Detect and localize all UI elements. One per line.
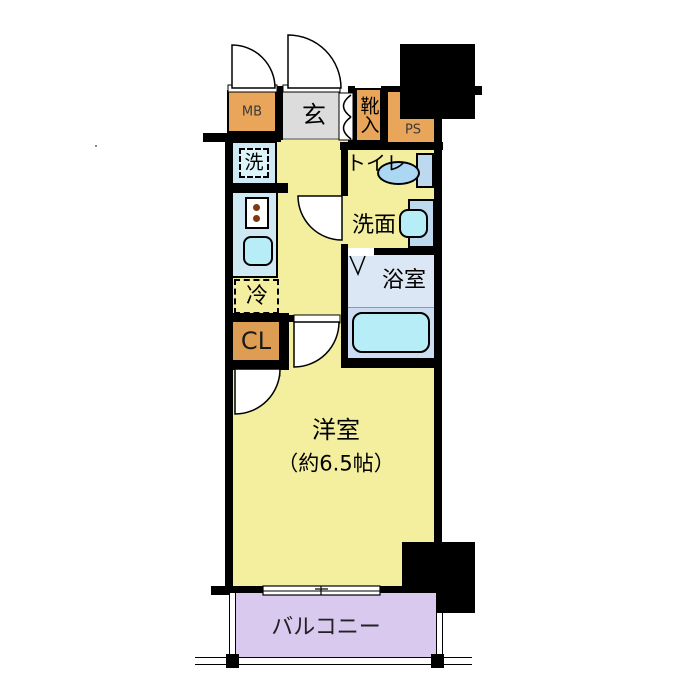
label-fridge: 冷: [246, 286, 268, 308]
door-window-symbols: [0, 0, 700, 700]
label-washer: 洗: [244, 154, 263, 173]
label-balcony: バルコニー: [271, 617, 381, 639]
entry-door-arc: [288, 35, 341, 88]
stray-dot: [95, 145, 97, 147]
mb-door-arc: [232, 45, 275, 88]
label-closet: CL: [241, 329, 271, 353]
washroom-door-arc: [298, 196, 342, 240]
label-genkan: 玄: [302, 103, 326, 127]
label-mb: MB: [242, 106, 262, 119]
floor-plan: MB 玄 靴入 PS 洗 トイレ 洗面 浴室 冷 CL 洋室 （約6.5帖） バ…: [0, 0, 700, 700]
closet-door-arc: [235, 369, 280, 414]
bath-folding-door: [350, 256, 365, 274]
western-room-door-arc: [294, 322, 339, 367]
bath-door-opening: [348, 248, 374, 256]
label-ps: PS: [405, 124, 421, 137]
label-western-room-size: （約6.5帖）: [277, 454, 394, 475]
label-western-room: 洋室: [312, 418, 360, 442]
label-toilet: トイレ: [346, 153, 406, 173]
label-shoe-cabinet: 靴入: [359, 96, 378, 134]
label-washroom: 洗面: [352, 215, 396, 237]
label-bathroom: 浴室: [382, 270, 426, 292]
